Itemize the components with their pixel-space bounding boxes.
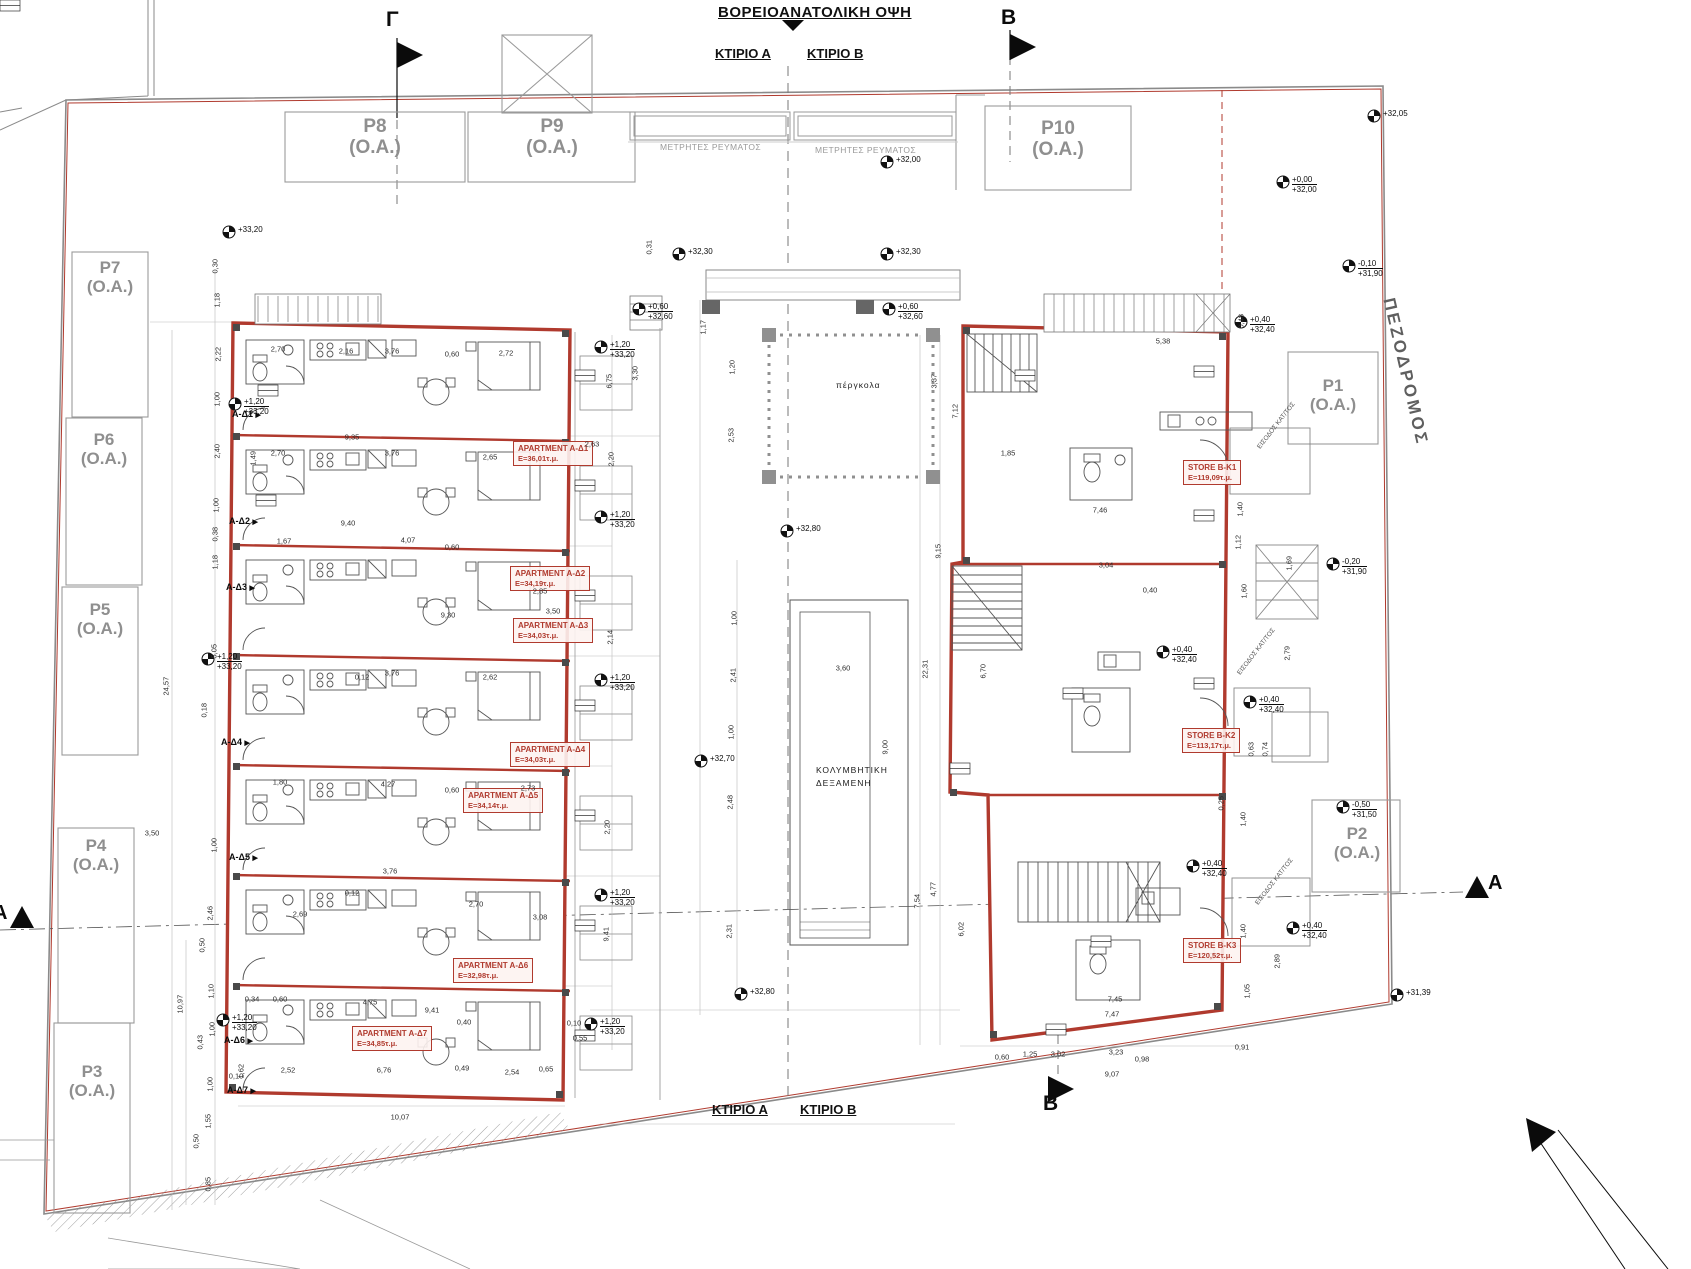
dimension-text: 3,50: [546, 607, 561, 616]
store-entrance-label: ΕΙΣΟΔΟΣ ΚΑΤ/ΤΟΣ: [1254, 857, 1295, 906]
dimension-text: 0,48: [1237, 314, 1246, 329]
dimension-text: 1,12: [1234, 535, 1243, 550]
elevation-value: +1,20: [600, 1017, 625, 1027]
elevation-value: +0,40: [1172, 645, 1197, 655]
elevation-value: +33,20: [244, 407, 269, 416]
dimension-text: 2,41: [729, 668, 738, 683]
dimension-text: 1,00: [727, 725, 736, 740]
parking-label-p2: P2(Ο.Α.): [1334, 824, 1380, 862]
parking-id: P1: [1310, 376, 1356, 395]
elevation-marker: +32,30: [672, 247, 713, 261]
dimension-text: 2,70: [271, 345, 286, 354]
elevation-values: +33,20: [238, 225, 263, 234]
elevation-marker: +1,20+33,20: [594, 510, 635, 529]
dimension-text: 2,65: [483, 453, 498, 462]
unit-tag-text: Α-Δ2: [229, 516, 250, 526]
elevation-marker: -0,50+31,50: [1336, 800, 1377, 819]
dimension-text: 9,41: [425, 1006, 440, 1015]
elevation-value: +1,20: [610, 673, 635, 683]
elevation-value: +31,90: [1358, 269, 1383, 278]
store-label-name: STORE B-K2: [1187, 731, 1235, 741]
apartment-label-name: APARTMENT A-Δ7: [357, 1029, 427, 1039]
dimension-text: 5,38: [1156, 337, 1171, 346]
dimension-text: 7,45: [1108, 995, 1123, 1004]
dimension-text: 3,76: [385, 669, 400, 678]
benchmark-icon: [1326, 557, 1340, 571]
elevation-marker: +0,40+32,40: [1156, 645, 1197, 664]
elevation-values: +0,40+32,40: [1302, 921, 1327, 940]
elevation-value: +32,80: [750, 987, 775, 996]
apartment-label-area: E=34,03τ.μ.: [518, 631, 588, 641]
dimension-text: 2,69: [293, 910, 308, 919]
unit-tag-Α-Δ4: Α-Δ4 ▶: [221, 737, 250, 747]
elevation-marker: +33,20: [222, 225, 263, 239]
elevation-value: -0,10: [1358, 259, 1383, 269]
dimension-text: 2,62: [483, 673, 498, 682]
elevation-value: +1,20: [217, 652, 242, 662]
elevation-value: +0,40: [1202, 859, 1227, 869]
dimension-text: 1,20: [728, 360, 737, 375]
elevation-marker: +1,20+33,20: [584, 1017, 625, 1036]
dimension-text: 7,46: [1093, 506, 1108, 515]
dimension-text: 0,60: [445, 543, 460, 552]
elevation-values: -0,10+31,90: [1358, 259, 1383, 278]
apartment-label-area: E=34,85τ.μ.: [357, 1039, 427, 1049]
dimension-text: 1,00: [208, 1022, 217, 1037]
door-arrow-icon: ▶: [248, 1038, 253, 1045]
parking-id: P3: [69, 1062, 115, 1081]
dimension-text: 6,75: [605, 374, 614, 389]
dimension-text: 1,25: [1023, 1050, 1038, 1059]
dimension-text: 0,38: [211, 527, 220, 542]
section-marker-Γ: Γ: [386, 8, 399, 32]
elevation-value: +32,40: [1172, 655, 1197, 664]
dimension-text: 0,49: [455, 1064, 470, 1073]
elevation-marker: +32,70: [694, 754, 735, 768]
benchmark-icon: [880, 247, 894, 261]
door-arrow-icon: ▶: [253, 519, 258, 526]
dimension-text: 2,72: [499, 349, 514, 358]
benchmark-icon: [222, 225, 236, 239]
dimension-text: 24,57: [162, 677, 171, 696]
dimension-text: 3,02: [1051, 1050, 1066, 1059]
elevation-values: -0,50+31,50: [1352, 800, 1377, 819]
benchmark-icon: [594, 888, 608, 902]
dimension-text: 0,98: [1135, 1055, 1150, 1064]
dimension-text: 9,35: [345, 433, 360, 442]
elevation-value: +33,20: [610, 683, 635, 692]
dimension-text: 4,27: [381, 780, 396, 789]
dimension-text: 4,07: [401, 536, 416, 545]
dimension-text: 2,63: [585, 440, 600, 449]
unit-tag-text: Α-Δ7: [227, 1085, 248, 1095]
elevation-marker: +31,39: [1390, 988, 1431, 1002]
elevation-marker: +32,00: [880, 155, 921, 169]
unit-tag-text: Α-Δ5: [229, 852, 250, 862]
benchmark-icon: [594, 340, 608, 354]
dimension-text: 1,67: [277, 537, 292, 546]
dimension-text: 2,20: [607, 452, 616, 467]
dimension-text: 7,47: [1105, 1010, 1120, 1019]
dimension-text: 0,12: [355, 673, 370, 682]
dimension-text: 3,08: [533, 913, 548, 922]
dimension-text: 3,60: [836, 664, 851, 673]
benchmark-icon: [672, 247, 686, 261]
dimension-text: 2,85: [533, 587, 548, 596]
elevation-value: +32,40: [1259, 705, 1284, 714]
unit-tag-Α-Δ3: Α-Δ3 ▶: [226, 582, 255, 592]
elevation-value: +32,00: [1292, 185, 1317, 194]
parking-label-p8: P8(Ο.Α.): [349, 116, 401, 159]
store-label-area: E=119,09τ.μ.: [1188, 473, 1236, 483]
elevation-values: +32,70: [710, 754, 735, 763]
floor-plan-sheet: ΒΟΡΕΙΟΑΝΑΤΟΛΙΚΗ ΟΨΗ ΚΤΙΡΙΟ Α ΚΤΙΡΙΟ Β ΚΤ…: [0, 0, 1691, 1269]
dimension-text: 1,18: [213, 293, 222, 308]
store-label-area: E=120,52τ.μ.: [1188, 951, 1236, 961]
dimension-text: 0,50: [192, 1134, 201, 1149]
benchmark-icon: [1342, 259, 1356, 273]
dimension-text: 9,30: [441, 611, 456, 620]
elevation-value: +0,60: [898, 302, 923, 312]
elevation-value: +32,00: [896, 155, 921, 164]
parking-id: P7: [87, 258, 133, 277]
elevation-value: +31,90: [1342, 567, 1367, 576]
generated-labels: P8(Ο.Α.)P9(Ο.Α.)P10(Ο.Α.)P7(Ο.Α.)P6(Ο.Α.…: [0, 0, 1691, 1269]
apartment-label-name: APARTMENT A-Δ1: [518, 444, 588, 454]
parking-ownership: (Ο.Α.): [73, 855, 119, 874]
dimension-text: 7,54: [913, 894, 922, 909]
dimension-text: 0,60: [445, 786, 460, 795]
elevation-values: -0,20+31,90: [1342, 557, 1367, 576]
elevation-marker: +0,40+32,40: [1243, 695, 1284, 714]
unit-tag-text: Α-Δ6: [224, 1035, 245, 1045]
elevation-value: +32,40: [1202, 869, 1227, 878]
elevation-value: +1,20: [244, 397, 269, 407]
dimension-text: 1,18: [211, 555, 220, 570]
apartment-label-area: E=34,03τ.μ.: [515, 755, 585, 765]
benchmark-icon: [734, 987, 748, 1001]
dimension-text: 5,05: [210, 644, 219, 659]
dimension-text: 2,79: [1283, 646, 1292, 661]
dimension-text: 2,70: [271, 449, 286, 458]
elevation-values: +0,40+32,40: [1172, 645, 1197, 664]
dimension-text: 4,77: [929, 882, 938, 897]
apartment-label: APARTMENT A-Δ6E=32,98τ.μ.: [453, 958, 533, 983]
elevation-marker: +32,80: [780, 524, 821, 538]
unit-tag-Α-Δ5: Α-Δ5 ▶: [229, 852, 258, 862]
parking-label-p10: P10(Ο.Α.): [1032, 118, 1084, 161]
parking-label-p7: P7(Ο.Α.): [87, 258, 133, 296]
elevation-values: +1,20+33,20: [610, 340, 635, 359]
dimension-text: 1,62: [237, 1064, 246, 1079]
dimension-text: 1,40: [1239, 812, 1248, 827]
dimension-text: 7,12: [951, 404, 960, 419]
dimension-text: 4,75: [363, 998, 378, 1007]
store-label-name: STORE B-K3: [1188, 941, 1236, 951]
dimension-text: 0,60: [445, 350, 460, 359]
elevation-value: +0,40: [1302, 921, 1327, 931]
dimension-text: 2,52: [281, 1066, 296, 1075]
unit-tag-text: Α-Δ4: [221, 737, 242, 747]
dimension-text: 9,07: [1105, 1070, 1120, 1079]
dimension-text: 2,46: [206, 906, 215, 921]
dimension-text: 0,60: [995, 1053, 1010, 1062]
apartment-label-name: APARTMENT A-Δ6: [458, 961, 528, 971]
dimension-text: 0,60: [273, 995, 288, 1004]
apartment-label-area: E=32,98τ.μ.: [458, 971, 528, 981]
elevation-values: +0,60+32,60: [648, 302, 673, 321]
dimension-text: 10,07: [391, 1113, 410, 1122]
elevation-marker: +1,20+33,20: [216, 1013, 257, 1032]
dimension-text: 0,34: [245, 995, 260, 1004]
elevation-marker: +0,60+32,60: [632, 302, 673, 321]
dimension-text: 9,00: [881, 740, 890, 755]
parking-id: P4: [73, 836, 119, 855]
store-entrance-label: ΕΙΣΟΔΟΣ ΚΑΤ/ΤΟΣ: [1256, 401, 1297, 450]
section-marker-Β: Β: [1043, 1092, 1058, 1116]
door-arrow-icon: ▶: [250, 585, 255, 592]
apartment-label: APARTMENT A-Δ2E=34,19τ.μ.: [510, 566, 590, 591]
parking-label-p1: P1(Ο.Α.): [1310, 376, 1356, 414]
apartment-label-name: APARTMENT A-Δ2: [515, 569, 585, 579]
dimension-text: 0,55: [573, 1034, 588, 1043]
elevation-values: +32,30: [688, 247, 713, 256]
elevation-values: +0,40+32,40: [1250, 315, 1275, 334]
store-label-area: E=113,17τ.μ.: [1187, 741, 1235, 751]
elevation-value: +32,70: [710, 754, 735, 763]
dimension-text: 0,43: [196, 1035, 205, 1050]
dimension-text: 1,85: [1001, 449, 1016, 458]
parking-ownership: (Ο.Α.): [77, 619, 123, 638]
benchmark-icon: [594, 510, 608, 524]
benchmark-icon: [228, 397, 242, 411]
elevation-values: +1,20+33,20: [610, 510, 635, 529]
dimension-text: 1,00: [206, 1077, 215, 1092]
unit-tag-Α-Δ7: Α-Δ7 ▶: [227, 1085, 256, 1095]
parking-id: P2: [1334, 824, 1380, 843]
parking-id: P9: [526, 116, 578, 137]
elevation-values: +1,20+33,20: [244, 397, 269, 416]
dimension-text: 3,23: [1109, 1048, 1124, 1057]
elevation-value: +1,20: [610, 888, 635, 898]
elevation-marker: +1,20+33,20: [594, 673, 635, 692]
section-marker-Α: Α: [1488, 872, 1502, 895]
elevation-value: +32,40: [1302, 931, 1327, 940]
elevation-value: +32,05: [1383, 109, 1408, 118]
elevation-marker: +32,30: [880, 247, 921, 261]
elevation-values: +32,00: [896, 155, 921, 164]
elevation-value: +0,40: [1250, 315, 1275, 325]
elevation-values: +32,30: [896, 247, 921, 256]
dimension-text: 3,76: [385, 347, 400, 356]
benchmark-icon: [1243, 695, 1257, 709]
dimension-text: 2,54: [505, 1068, 520, 1077]
benchmark-icon: [880, 155, 894, 169]
dimension-text: 1,00: [210, 838, 219, 853]
unit-tag-text: Α-Δ3: [226, 582, 247, 592]
elevation-marker: +0,40+32,40: [1286, 921, 1327, 940]
elevation-values: +32,80: [796, 524, 821, 533]
dimension-text: 0,31: [645, 240, 654, 255]
dimension-text: 3,76: [383, 867, 398, 876]
benchmark-icon: [882, 302, 896, 316]
benchmark-icon: [694, 754, 708, 768]
unit-tag-Α-Δ6: Α-Δ6 ▶: [224, 1035, 253, 1045]
elevation-value: +33,20: [238, 225, 263, 234]
elevation-marker: +1,20+33,20: [228, 397, 269, 416]
benchmark-icon: [594, 673, 608, 687]
dimension-text: 2,70: [469, 900, 484, 909]
dimension-text: 3,76: [385, 449, 400, 458]
elevation-values: +0,60+32,60: [898, 302, 923, 321]
dimension-text: 0,12: [345, 889, 360, 898]
dimension-text: 1,17: [699, 320, 708, 335]
dimension-text: 6,76: [377, 1066, 392, 1075]
elevation-value: -0,50: [1352, 800, 1377, 810]
benchmark-icon: [780, 524, 794, 538]
elevation-values: +0,40+32,40: [1202, 859, 1227, 878]
parking-label-p3: P3(Ο.Α.): [69, 1062, 115, 1100]
dimension-text: 2,20: [603, 820, 612, 835]
dimension-text: 0,10: [567, 1019, 582, 1028]
benchmark-icon: [584, 1017, 598, 1031]
dimension-text: 3,50: [145, 829, 160, 838]
parking-ownership: (Ο.Α.): [87, 277, 133, 296]
benchmark-icon: [1367, 109, 1381, 123]
dimension-text: 6,02: [957, 922, 966, 937]
dimension-text: 1,80: [273, 778, 288, 787]
elevation-marker: +1,20+33,20: [201, 652, 242, 671]
elevation-marker: +32,05: [1367, 109, 1408, 123]
apartment-label-area: E=34,19τ.μ.: [515, 579, 585, 589]
dimension-text: 2,14: [606, 630, 615, 645]
elevation-values: +0,40+32,40: [1259, 695, 1284, 714]
benchmark-icon: [216, 1013, 230, 1027]
elevation-values: +1,20+33,20: [217, 652, 242, 671]
elevation-marker: +32,80: [734, 987, 775, 1001]
door-arrow-icon: ▶: [251, 1088, 256, 1095]
benchmark-icon: [1186, 859, 1200, 873]
dimension-text: 2,53: [727, 428, 736, 443]
dimension-text: 0,40: [457, 1018, 472, 1027]
dimension-text: 1,00: [213, 392, 222, 407]
apartment-label-name: APARTMENT A-Δ5: [468, 791, 538, 801]
benchmark-icon: [1276, 175, 1290, 189]
store-label-name: STORE B-K1: [1188, 463, 1236, 473]
dimension-text: 9,41: [602, 927, 611, 942]
dimension-text: 1,69: [1285, 556, 1294, 571]
benchmark-icon: [1390, 988, 1404, 1002]
dimension-text: 2,22: [214, 347, 223, 362]
store-label: STORE B-K2E=113,17τ.μ.: [1182, 728, 1240, 753]
parking-label-p6: P6(Ο.Α.): [81, 430, 127, 468]
parking-label-p9: P9(Ο.Α.): [526, 116, 578, 159]
elevation-values: +32,05: [1383, 109, 1408, 118]
dimension-text: 1,00: [212, 498, 221, 513]
parking-id: P5: [77, 600, 123, 619]
store-entrance-label: ΕΙΣΟΔΟΣ ΚΑΤ/ΤΟΣ: [1236, 627, 1277, 676]
dimension-text: 0,40: [1143, 586, 1158, 595]
dimension-text: 0,65: [539, 1065, 554, 1074]
elevation-value: -0,20: [1342, 557, 1367, 567]
parking-label-p5: P5(Ο.Α.): [77, 600, 123, 638]
dimension-text: 2,31: [725, 924, 734, 939]
apartment-label-area: E=36,01τ.μ.: [518, 454, 588, 464]
parking-ownership: (Ο.Α.): [1032, 139, 1084, 160]
elevation-value: +0,00: [1292, 175, 1317, 185]
store-label: STORE B-K1E=119,09τ.μ.: [1183, 460, 1241, 485]
dimension-text: 6,70: [979, 664, 988, 679]
dimension-text: 2,48: [726, 795, 735, 810]
elevation-value: +0,60: [648, 302, 673, 312]
elevation-value: +33,20: [610, 350, 635, 359]
dimension-text: 0,63: [1247, 742, 1256, 757]
dimension-text: 3,37: [930, 374, 939, 389]
elevation-values: +1,20+33,20: [610, 673, 635, 692]
elevation-values: +1,20+33,20: [232, 1013, 257, 1032]
parking-ownership: (Ο.Α.): [349, 137, 401, 158]
dimension-text: 3,30: [631, 366, 640, 381]
parking-ownership: (Ο.Α.): [81, 449, 127, 468]
dimension-text: 1,05: [1243, 984, 1252, 999]
elevation-value: +31,39: [1406, 988, 1431, 997]
dimension-text: 1,10: [207, 984, 216, 999]
dimension-text: 0,91: [1235, 1043, 1250, 1052]
dimension-text: 1,00: [730, 611, 739, 626]
benchmark-icon: [632, 302, 646, 316]
parking-id: P6: [81, 430, 127, 449]
dimension-text: 9,15: [934, 544, 943, 559]
parking-label-p4: P4(Ο.Α.): [73, 836, 119, 874]
dimension-text: 0,30: [211, 259, 220, 274]
elevation-marker: +0,00+32,00: [1276, 175, 1317, 194]
apartment-label-name: APARTMENT A-Δ4: [515, 745, 585, 755]
elevation-value: +31,50: [1352, 810, 1377, 819]
parking-ownership: (Ο.Α.): [69, 1081, 115, 1100]
elevation-value: +32,30: [688, 247, 713, 256]
benchmark-icon: [1156, 645, 1170, 659]
dimension-text: 0,50: [198, 938, 207, 953]
elevation-marker: -0,10+31,90: [1342, 259, 1383, 278]
elevation-value: +32,60: [648, 312, 673, 321]
apartment-label-area: E=34,14τ.μ.: [468, 801, 538, 811]
apartment-label-name: APARTMENT A-Δ3: [518, 621, 588, 631]
parking-id: P8: [349, 116, 401, 137]
elevation-value: +32,40: [1250, 325, 1275, 334]
dimension-text: 10,97: [176, 995, 185, 1014]
store-label: STORE B-K3E=120,52τ.μ.: [1183, 938, 1241, 963]
dimension-text: 0,25: [1217, 796, 1226, 811]
dimension-text: 2,89: [1273, 954, 1282, 969]
apartment-label: APARTMENT A-Δ7E=34,85τ.μ.: [352, 1026, 432, 1051]
dimension-text: 2,40: [213, 444, 222, 459]
elevation-value: +0,40: [1259, 695, 1284, 705]
elevation-marker: +0,40+32,40: [1186, 859, 1227, 878]
dimension-text: 1,60: [1240, 584, 1249, 599]
elevation-marker: +0,60+32,60: [882, 302, 923, 321]
section-marker-Α: Α: [0, 902, 7, 925]
elevation-marker: +1,20+33,20: [594, 340, 635, 359]
dimension-text: 0,74: [1261, 742, 1270, 757]
dimension-text: 2,73: [521, 784, 536, 793]
apartment-label: APARTMENT A-Δ4E=34,03τ.μ.: [510, 742, 590, 767]
dimension-text: 1,55: [204, 1114, 213, 1129]
unit-tag-Α-Δ2: Α-Δ2 ▶: [229, 516, 258, 526]
elevation-values: +1,20+33,20: [610, 888, 635, 907]
dimension-text: 1,49: [249, 451, 258, 466]
dimension-text: 3,04: [1099, 561, 1114, 570]
section-marker-Β: Β: [1001, 6, 1016, 30]
